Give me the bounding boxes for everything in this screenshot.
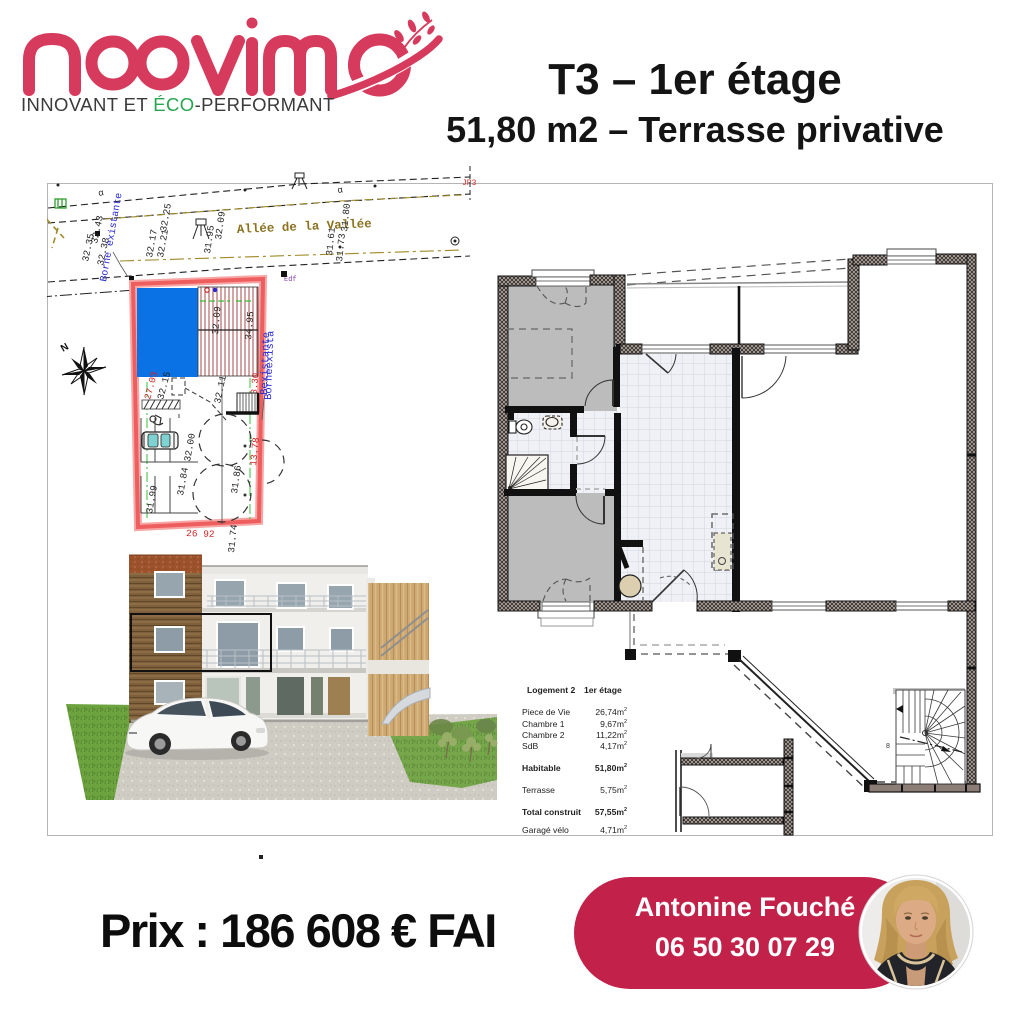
svg-text:4,71m: 4,71m: [600, 825, 624, 835]
svg-text:2: 2: [624, 707, 627, 713]
svg-text:8: 8: [886, 743, 890, 750]
svg-text:Allée de la Vallée: Allée de la Vallée: [237, 217, 373, 237]
svg-text:57,55m: 57,55m: [595, 807, 625, 817]
svg-text:Habitable: Habitable: [522, 763, 561, 773]
svg-text:1er étage: 1er étage: [584, 685, 622, 695]
svg-text:Chambre 2: Chambre 2: [522, 730, 565, 740]
svg-text:Garagé vélo: Garagé vélo: [522, 825, 569, 835]
svg-text:2: 2: [624, 730, 627, 736]
svg-text:Terrasse: Terrasse: [522, 785, 555, 795]
svg-text:2: 2: [624, 719, 627, 725]
svg-text:2: 2: [624, 785, 627, 791]
svg-text:9,67m: 9,67m: [600, 719, 624, 729]
svg-text:N: N: [59, 341, 71, 354]
svg-text:INNOVANT ET ÉCO-PERFORMANT: INNOVANT ET ÉCO-PERFORMANT: [21, 94, 335, 115]
svg-text:2: 2: [624, 825, 627, 831]
svg-text:Piece de Vie: Piece de Vie: [522, 707, 570, 717]
svg-text:31.74: 31.74: [226, 524, 240, 554]
svg-text:5,75m: 5,75m: [600, 785, 624, 795]
svg-text:Borneexista: Borneexista: [263, 330, 277, 400]
svg-text:Edf: Edf: [284, 276, 297, 284]
svg-text:31.73: 31.73: [334, 233, 348, 263]
svg-text:2: 2: [624, 763, 627, 769]
svg-text:32.09: 32.09: [213, 210, 228, 240]
svg-text:32.25: 32.25: [158, 202, 174, 232]
svg-text:26,74m: 26,74m: [595, 707, 624, 717]
svg-text:2: 2: [624, 807, 627, 813]
svg-text:SdB: SdB: [522, 741, 539, 751]
svg-text:Logement 2: Logement 2: [527, 685, 575, 695]
svg-text:Total construit: Total construit: [522, 807, 581, 817]
svg-text:26 92: 26 92: [186, 528, 215, 540]
svg-text:11,22m: 11,22m: [596, 730, 624, 740]
svg-text:α: α: [97, 187, 104, 198]
svg-text:Chambre 1: Chambre 1: [522, 719, 565, 729]
svg-text:JP3: JP3: [462, 179, 477, 188]
svg-text:51,80m: 51,80m: [595, 763, 625, 773]
svg-text:2: 2: [624, 741, 627, 747]
svg-text:α: α: [337, 184, 344, 195]
svg-text:4,17m: 4,17m: [600, 741, 624, 751]
